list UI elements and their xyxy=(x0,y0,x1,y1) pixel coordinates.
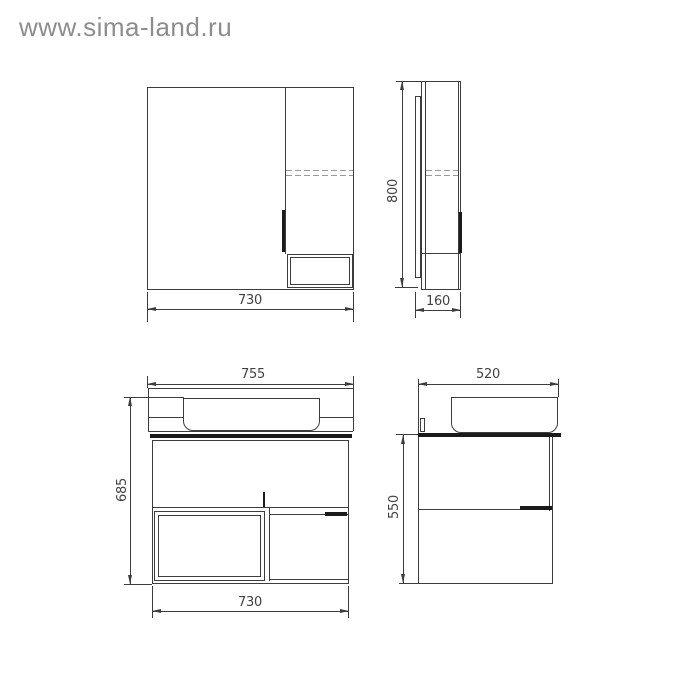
vanity-side-basin xyxy=(451,397,558,433)
dim-extension-line xyxy=(399,583,418,584)
vanity-front-drawer-bottom-line xyxy=(269,579,349,580)
mirror-front-box-inner xyxy=(290,257,350,285)
dim-extension-line xyxy=(152,586,153,618)
dim-arrow xyxy=(147,307,156,311)
dim-label-vanity-side-height: 550 xyxy=(388,490,402,524)
vanity-front-counter-front-edge xyxy=(148,431,353,432)
mirror-front-shelf-dashed-line-2 xyxy=(286,175,353,176)
dim-label-vanity-top-width: 755 xyxy=(236,368,270,382)
vanity-side-bottom-edge xyxy=(418,583,553,584)
vanity-front-counter-band xyxy=(150,434,352,438)
dim-line-vanity-top-width xyxy=(147,384,354,385)
dim-arrow xyxy=(400,278,404,287)
dim-label-mirror-depth: 160 xyxy=(421,295,455,309)
vanity-front-drawer-left-edge xyxy=(269,507,270,581)
watermark-text: www.sima-land.ru xyxy=(19,12,232,43)
dim-arrow xyxy=(128,397,132,406)
dim-arrow xyxy=(152,609,161,613)
dim-extension-line xyxy=(348,586,349,618)
dim-line-mirror-height xyxy=(402,81,403,287)
vanity-front-drawer-handle xyxy=(325,512,347,516)
mirror-front-door-handle xyxy=(282,210,285,252)
vanity-front-counter-right-edge xyxy=(353,388,354,431)
vanity-side-back-inner-line xyxy=(549,437,550,511)
vanity-front-top-drawer-handle xyxy=(263,492,265,507)
dim-extension-line xyxy=(460,292,461,318)
mirror-side-body xyxy=(421,81,461,290)
vanity-front-counter-surface-left xyxy=(148,417,183,418)
vanity-side-front-tab xyxy=(420,418,425,432)
mirror-side-handle xyxy=(459,212,462,253)
dim-arrow xyxy=(401,574,405,583)
dim-extension-line xyxy=(124,584,152,585)
dim-arrow xyxy=(128,575,132,584)
vanity-front-divider xyxy=(152,507,349,508)
mirror-side-front-face-line xyxy=(425,82,426,289)
dim-extension-line xyxy=(124,397,184,398)
mirror-side-shelf-dashed-line-2 xyxy=(426,175,458,176)
dim-arrow xyxy=(345,382,354,386)
dim-label-mirror-height: 800 xyxy=(387,174,401,208)
dim-extension-line xyxy=(415,292,416,318)
vanity-side-front-edge xyxy=(418,437,419,583)
dim-arrow xyxy=(345,307,354,311)
dim-label-mirror-width: 730 xyxy=(233,294,267,308)
vanity-front-counter-left-edge xyxy=(148,388,149,431)
vanity-side-counter-band xyxy=(418,433,561,437)
dim-arrow xyxy=(418,382,427,386)
dim-extension-line xyxy=(396,434,418,435)
vanity-side-drawer-handle xyxy=(520,506,552,510)
dim-line-vanity-bottom-width xyxy=(152,611,349,612)
dim-label-vanity-bottom-width: 730 xyxy=(233,596,267,610)
vanity-front-basin xyxy=(183,398,320,431)
dim-arrow xyxy=(550,382,559,386)
dim-line-vanity-height xyxy=(130,397,131,584)
dim-line-vanity-side-height xyxy=(403,435,404,583)
dim-arrow xyxy=(400,81,404,90)
mirror-side-shelf-dashed-line xyxy=(426,170,458,171)
vanity-front-counter-back-edge xyxy=(148,388,353,389)
vanity-side-back-edge xyxy=(552,437,553,583)
dim-label-vanity-depth: 520 xyxy=(471,368,505,382)
product-drawing-image: www.sima-land.ru 730 800 xyxy=(0,0,700,700)
dim-arrow xyxy=(147,382,156,386)
dim-extension-line xyxy=(418,379,419,433)
dim-line-vanity-depth xyxy=(418,384,558,385)
dim-extension-line xyxy=(395,287,418,288)
mirror-side-mirror-panel xyxy=(415,96,421,278)
vanity-front-shelf-inner xyxy=(158,515,261,577)
dim-arrow xyxy=(340,609,349,613)
dim-arrow xyxy=(401,435,405,444)
mirror-front-shelf-dashed-line xyxy=(286,170,353,171)
mirror-side-shelf-line xyxy=(422,253,461,254)
dim-label-vanity-height: 685 xyxy=(116,473,130,507)
vanity-front-counter-surface-right xyxy=(320,417,353,418)
mirror-side-back-face-line xyxy=(458,82,459,289)
dim-line-mirror-width xyxy=(147,309,354,310)
